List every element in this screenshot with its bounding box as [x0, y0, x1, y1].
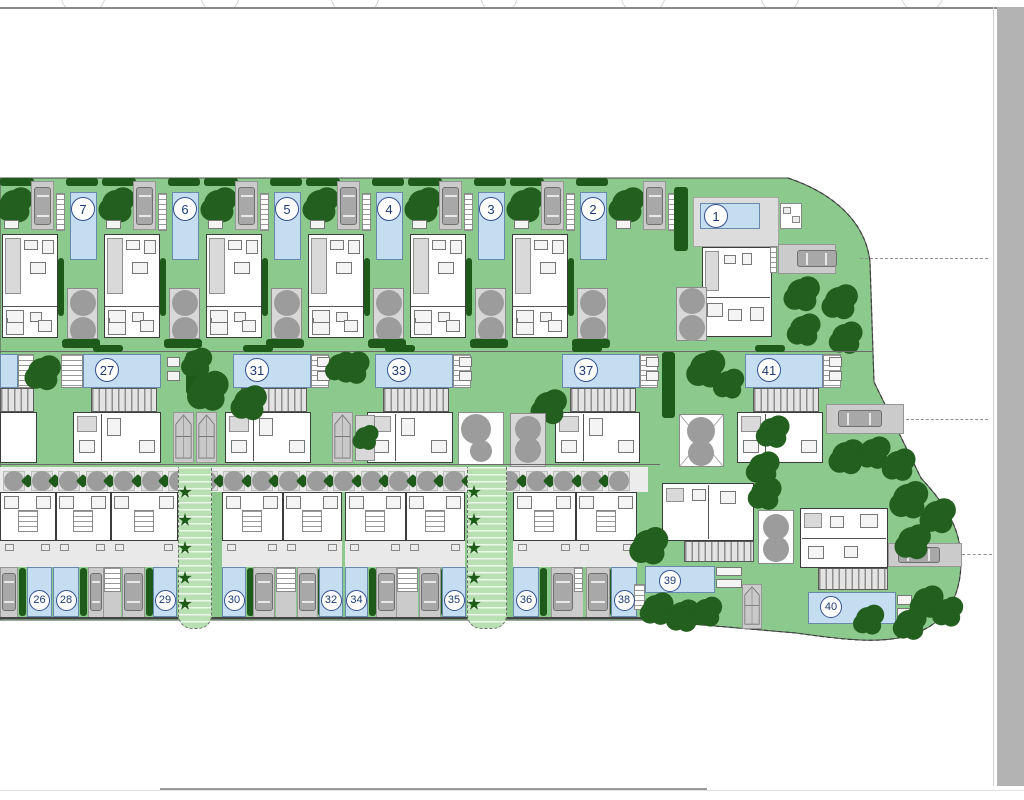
trailer-icon — [175, 414, 192, 459]
tree-icon — [832, 324, 858, 350]
x — [6, 318, 8, 320]
bed — [720, 491, 736, 504]
furniture — [132, 262, 148, 274]
dining-table — [259, 418, 273, 436]
faint-tree-outline — [60, 0, 106, 7]
terrace-furniture — [391, 544, 400, 551]
interior-wall — [513, 306, 567, 307]
bed — [59, 496, 74, 509]
bed — [79, 440, 95, 453]
tree-icon — [204, 190, 232, 218]
plot-number-label: 6 — [173, 197, 197, 221]
site-plan-canvas: 765432127313337412628293032343536383940 — [0, 0, 1024, 800]
terrace-furniture — [716, 579, 742, 588]
terrace-furniture — [459, 357, 472, 367]
x — [516, 318, 518, 320]
tree-icon — [28, 358, 56, 386]
hedge-strip — [204, 178, 238, 186]
bed — [743, 440, 759, 453]
terrace-furniture — [410, 544, 419, 551]
plot-number-label: 5 — [275, 197, 299, 221]
bed — [263, 496, 278, 509]
shared-stairs — [397, 567, 418, 592]
x — [210, 318, 212, 320]
furniture — [330, 240, 344, 250]
side-stairs — [566, 193, 575, 231]
hedge-strip — [364, 258, 370, 316]
furniture — [38, 320, 52, 332]
right-band-edge-line — [993, 7, 994, 786]
tree-icon — [408, 190, 436, 218]
terrace-furniture — [268, 544, 277, 551]
terrace-furniture — [623, 544, 632, 551]
tree-icon — [787, 279, 815, 307]
right-road-band — [997, 7, 1024, 786]
party-wall — [405, 492, 407, 541]
townhouse-terrace — [513, 541, 637, 567]
hedge-strip — [262, 258, 268, 316]
patio-tree-icon — [274, 290, 300, 316]
terrace-furniture — [5, 544, 14, 551]
plot-number-label: 36 — [516, 590, 537, 611]
shared-drive — [574, 592, 583, 618]
hedge-strip — [146, 568, 153, 616]
car-icon — [421, 573, 439, 611]
car-icon — [797, 250, 837, 267]
car-icon — [124, 573, 143, 611]
plot-number-label: 27 — [95, 358, 119, 382]
tree-icon — [633, 530, 663, 560]
furniture — [552, 240, 564, 254]
bed — [349, 496, 364, 509]
furniture — [750, 307, 764, 321]
plot-number-label: 40 — [820, 596, 842, 618]
car-icon — [340, 187, 357, 225]
hedge-strip — [470, 339, 508, 348]
plot-number-label: 28 — [56, 590, 77, 611]
bed — [210, 322, 228, 335]
furniture — [432, 240, 446, 250]
furniture — [344, 320, 358, 332]
hedge-strip — [19, 568, 26, 616]
hedge-strip — [164, 339, 202, 348]
tree-icon — [510, 190, 538, 218]
hedge-strip — [540, 568, 547, 616]
living-room — [209, 238, 225, 294]
faint-tree-outline — [760, 0, 800, 7]
bed — [707, 303, 723, 317]
stair-core — [242, 510, 262, 532]
hedge-strip — [66, 178, 98, 186]
tree-icon — [306, 190, 334, 218]
bed — [6, 322, 24, 335]
furniture — [336, 262, 352, 274]
terrace-furniture — [41, 544, 50, 551]
townhouse-terrace — [222, 541, 342, 567]
bed — [312, 322, 330, 335]
patio-tree-icon — [580, 290, 606, 316]
furniture — [548, 320, 562, 332]
furniture — [446, 320, 460, 332]
stair-core — [302, 510, 322, 532]
side-stairs — [260, 193, 269, 231]
hedge-strip — [755, 345, 785, 352]
hedge-strip — [243, 345, 273, 352]
patio-tree-icon — [478, 290, 504, 316]
tree-icon — [825, 287, 853, 315]
bed — [373, 440, 389, 453]
terrace-furniture — [646, 357, 659, 367]
living-room — [107, 238, 123, 294]
side-stairs — [362, 193, 371, 231]
side-stairs — [158, 193, 167, 231]
patio-tree-icon — [461, 414, 491, 444]
townhouse-terrace — [0, 541, 178, 567]
furniture — [742, 253, 752, 265]
tree-icon — [690, 353, 720, 383]
hedge-strip — [576, 178, 608, 186]
furniture — [228, 240, 242, 250]
room — [666, 488, 684, 502]
interior-wall — [101, 414, 102, 461]
party-wall — [575, 492, 577, 541]
adjacent-drawing-strip — [0, 0, 1024, 7]
x — [414, 318, 416, 320]
faint-tree-outline — [620, 0, 666, 7]
living-room — [413, 238, 429, 294]
bed — [414, 322, 432, 335]
bed — [618, 496, 633, 509]
furniture — [126, 240, 140, 250]
car-icon — [299, 573, 316, 611]
terrace-furniture — [164, 544, 173, 551]
living-room — [229, 416, 249, 432]
terrace-furniture — [328, 544, 337, 551]
swimming-pool — [0, 354, 18, 388]
car-icon — [136, 187, 153, 225]
roof-deck — [684, 541, 754, 562]
car-icon — [238, 187, 255, 225]
bed — [231, 440, 247, 453]
living-room — [559, 416, 579, 432]
stair-core — [365, 510, 385, 532]
x — [312, 318, 314, 320]
faint-tree-outline — [480, 0, 518, 7]
plot-number-label: 2 — [581, 197, 605, 221]
plot-division-line — [0, 464, 660, 465]
tree-icon — [0, 190, 28, 218]
interior-wall — [207, 306, 261, 307]
tree-icon — [669, 602, 695, 628]
car-icon — [378, 573, 395, 611]
terrace-furniture — [167, 357, 180, 367]
tree-icon — [328, 354, 352, 378]
living-room — [515, 238, 531, 294]
dining-table — [401, 418, 415, 436]
interior-wall — [583, 414, 584, 461]
trailer-icon — [198, 414, 215, 459]
shared-stairs — [276, 567, 296, 592]
tree-icon — [234, 388, 262, 416]
patio-tree-icon — [515, 437, 541, 463]
furniture — [234, 262, 250, 274]
hedge-strip — [270, 178, 302, 186]
terrace-furniture — [96, 544, 105, 551]
hedge-strip — [93, 345, 123, 352]
plot-number-label: 1 — [704, 204, 728, 228]
bed — [556, 496, 571, 509]
furniture — [692, 489, 706, 501]
bed — [517, 496, 532, 509]
furniture — [30, 262, 46, 274]
living-room — [311, 238, 327, 294]
side-stairs — [56, 193, 65, 231]
bottom-light-line — [0, 790, 1024, 791]
terrace-furniture — [167, 371, 180, 381]
shared-drive — [104, 592, 121, 618]
hedge-column — [674, 187, 688, 251]
stair-core — [425, 510, 445, 532]
bed — [4, 496, 19, 509]
bed — [139, 440, 155, 453]
roof-deck — [570, 388, 636, 412]
tree-icon — [191, 374, 223, 406]
stair-core — [534, 510, 554, 532]
hedge-strip — [408, 178, 442, 186]
plot-number-label: 30 — [224, 590, 245, 611]
tree-icon — [749, 454, 775, 480]
hedge-strip — [58, 258, 64, 316]
furniture — [24, 240, 38, 250]
tree-icon — [885, 451, 911, 477]
plot-number-label: 7 — [71, 197, 95, 221]
tree-icon — [694, 599, 718, 623]
interior-wall — [708, 485, 709, 539]
bed — [808, 546, 824, 559]
stair-core — [596, 510, 616, 532]
shared-drive — [397, 592, 418, 618]
furniture — [348, 240, 360, 254]
interior-wall — [309, 306, 363, 307]
furniture — [724, 255, 736, 264]
car-icon — [255, 573, 273, 611]
row-edge-line — [0, 617, 645, 619]
terrace-furniture — [60, 544, 69, 551]
terrace-furniture — [115, 544, 124, 551]
party-wall — [110, 492, 112, 541]
bed — [286, 496, 301, 509]
interior-wall — [704, 297, 770, 298]
car-icon — [90, 573, 102, 611]
plot-number-label: 34 — [346, 590, 367, 611]
shared-drive — [276, 592, 296, 618]
car-icon — [588, 573, 608, 611]
plot-number-label: 31 — [245, 358, 269, 382]
pool-terrace-stairs — [61, 354, 83, 388]
terrace-furniture — [580, 544, 589, 551]
patio-tree-icon — [172, 290, 198, 316]
terrace-furniture — [317, 371, 330, 381]
patio-tree-icon — [688, 440, 714, 466]
party-wall — [55, 492, 57, 541]
bed — [579, 496, 594, 509]
tree-icon — [184, 350, 208, 374]
terrace-furniture — [829, 357, 842, 367]
stair-core — [18, 510, 38, 532]
terrace-furniture — [227, 544, 236, 551]
plot-number-label: 35 — [444, 590, 465, 611]
roof-deck — [0, 388, 34, 412]
tree-icon — [612, 190, 640, 218]
terrace-furniture — [561, 544, 570, 551]
plot-number-label: 32 — [321, 590, 342, 611]
bed — [36, 496, 51, 509]
party-wall — [282, 492, 284, 541]
car-icon — [442, 187, 459, 225]
patio-tree-icon — [763, 536, 789, 562]
hedge-strip — [168, 178, 200, 186]
tree-icon — [896, 610, 922, 636]
hedge-strip — [0, 178, 34, 186]
hedge-strip — [306, 178, 340, 186]
hedge-strip — [80, 568, 87, 616]
sight-line — [860, 258, 988, 259]
tree-icon — [759, 418, 785, 444]
fixture — [792, 216, 800, 223]
bed — [114, 496, 129, 509]
plot-number-label: 3 — [479, 197, 503, 221]
dining-table — [589, 418, 603, 436]
tree-icon — [643, 595, 669, 621]
plot-number-label: 29 — [155, 590, 176, 611]
tree-icon — [716, 371, 740, 395]
side-stairs — [464, 193, 473, 231]
furniture — [830, 516, 844, 528]
stair-core — [73, 510, 93, 532]
bed — [618, 440, 634, 453]
tree-icon — [832, 442, 860, 470]
bed — [289, 440, 305, 453]
terrace-furniture — [287, 544, 296, 551]
villa-floorplan — [0, 412, 37, 463]
furniture — [844, 546, 858, 558]
trailer-icon — [744, 586, 760, 625]
terrace-furniture — [350, 544, 359, 551]
tree-icon — [898, 527, 926, 555]
tree-icon — [790, 316, 816, 342]
car-icon — [2, 573, 16, 611]
garden-table — [412, 220, 427, 229]
faint-tree-outline — [900, 0, 944, 7]
x — [108, 318, 110, 320]
hedge-strip — [466, 258, 472, 316]
garden-table — [106, 220, 121, 229]
terrace-furniture — [518, 544, 527, 551]
hedge-strip — [568, 258, 574, 316]
faint-tree-outline — [330, 0, 380, 7]
plot-number-label: 37 — [574, 358, 598, 382]
plot-number-label: 39 — [659, 570, 681, 592]
terrace-furniture — [716, 567, 742, 576]
garden-table — [208, 220, 223, 229]
patio-tree-icon — [376, 290, 402, 316]
tree-icon — [935, 599, 959, 623]
interior-wall — [253, 414, 254, 461]
terrace-furniture — [451, 544, 460, 551]
faint-tree-outline — [200, 0, 240, 7]
bed — [159, 496, 174, 509]
furniture — [246, 240, 258, 254]
roof-deck — [383, 388, 449, 412]
patio-tree-icon — [679, 288, 705, 314]
bottom-dark-line — [160, 788, 707, 790]
furniture — [540, 262, 556, 274]
furniture — [242, 320, 256, 332]
patio-tree-icon — [470, 440, 492, 462]
bed — [561, 440, 577, 453]
interior-wall — [411, 306, 465, 307]
bed — [446, 496, 461, 509]
garden-table — [616, 220, 631, 229]
furniture — [450, 240, 462, 254]
bed — [108, 322, 126, 335]
sight-line — [962, 554, 992, 555]
plot-number-label: 41 — [757, 358, 781, 382]
hedge-strip — [372, 178, 404, 186]
plot-division-line — [0, 351, 872, 352]
hedge-strip — [369, 568, 376, 616]
bed — [431, 440, 447, 453]
bed — [409, 496, 424, 509]
patio-tree-icon — [679, 315, 705, 341]
roof-deck — [753, 388, 819, 412]
sight-line — [906, 419, 988, 420]
hedge-strip — [160, 258, 166, 316]
furniture — [140, 320, 154, 332]
plan-layers: 765432127313337412628293032343536383940 — [0, 0, 1024, 800]
tree-icon — [355, 427, 375, 447]
bed — [516, 322, 534, 335]
interior-wall — [802, 538, 886, 539]
townhouse-terrace — [345, 541, 465, 567]
garden-table — [514, 220, 529, 229]
terrace-furniture — [646, 371, 659, 381]
hedge-strip — [474, 178, 506, 186]
terrace-furniture — [897, 595, 912, 605]
bed — [801, 440, 817, 453]
plot-number-label: 38 — [614, 590, 635, 611]
plot-number-label: 4 — [377, 197, 401, 221]
roof-deck — [818, 568, 888, 590]
living-room — [5, 238, 21, 294]
car-icon — [544, 187, 561, 225]
furniture — [728, 309, 742, 321]
interior-wall — [105, 306, 159, 307]
bed — [226, 496, 241, 509]
hedge-strip — [102, 178, 136, 186]
plot-number-label: 33 — [387, 358, 411, 382]
patio-tree-icon — [70, 290, 96, 316]
tree-icon — [102, 190, 130, 218]
bed — [386, 496, 401, 509]
plot-number-label: 26 — [29, 590, 50, 611]
interior-wall — [395, 414, 396, 461]
shared-stairs — [574, 567, 583, 592]
living-room — [741, 416, 761, 432]
bed — [91, 496, 106, 509]
furniture — [144, 240, 156, 254]
tree-icon — [923, 501, 951, 529]
